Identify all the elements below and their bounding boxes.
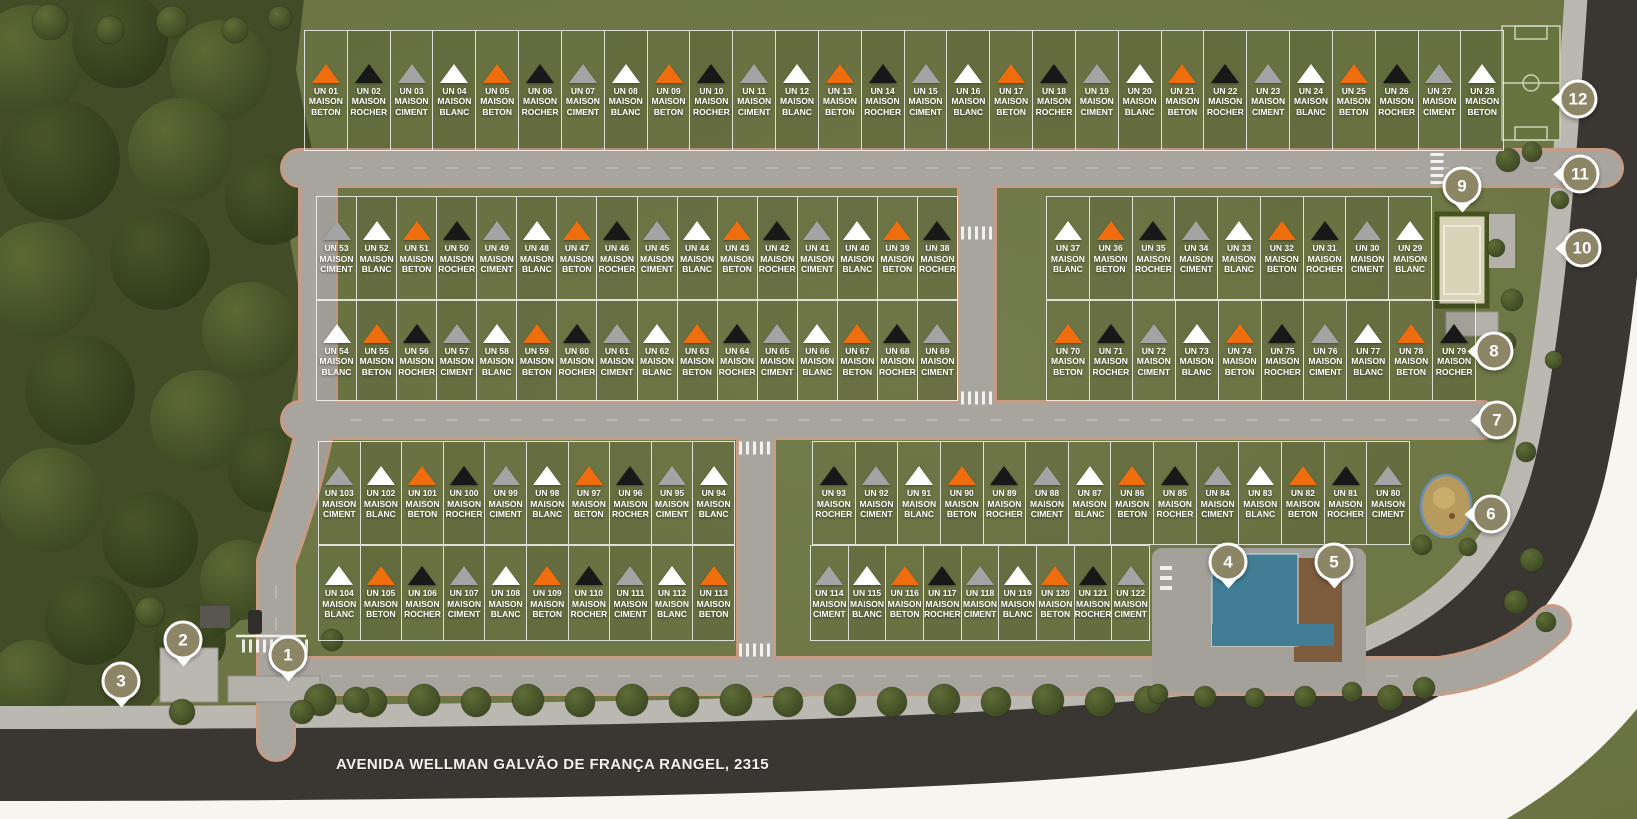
lot-label: UN 38MAISONROCHER: [919, 243, 956, 275]
lot-UN-24[interactable]: UN 24MAISONBLANC: [1289, 31, 1332, 150]
lot-label: UN 107MAISONCIMENT: [447, 588, 481, 620]
lot-UN-116[interactable]: UN 116MAISONBETON: [885, 546, 923, 640]
lot-UN-41[interactable]: UN 41MAISONCIMENT: [797, 197, 837, 299]
lot-marker-triangle: [966, 566, 994, 585]
lot-UN-96[interactable]: UN 96MAISONROCHER: [609, 442, 651, 544]
block-r5r: UN 114MAISONCIMENTUN 115MAISONBLANCUN 11…: [810, 545, 1150, 641]
lot-UN-95[interactable]: UN 95MAISONCIMENT: [651, 442, 693, 544]
lot-label: UN 22MAISONROCHER: [1207, 86, 1244, 118]
lot-UN-45[interactable]: UN 45MAISONCIMENT: [637, 197, 677, 299]
lot-UN-114[interactable]: UN 114MAISONCIMENT: [811, 546, 848, 640]
lot-marker-triangle: [403, 221, 431, 240]
lot-UN-100[interactable]: UN 100MAISONROCHER: [443, 442, 485, 544]
lot-UN-93[interactable]: UN 93MAISONROCHER: [813, 442, 855, 544]
lot-type: ROCHER: [693, 107, 730, 118]
lot-maison-word: MAISON: [440, 356, 474, 367]
lot-UN-83[interactable]: UN 83MAISONBLANC: [1238, 442, 1281, 544]
lot-UN-66[interactable]: UN 66MAISONBLANC: [797, 301, 837, 400]
lot-marker-triangle: [492, 566, 520, 585]
lot-UN-17[interactable]: UN 17MAISONBETON: [989, 31, 1032, 150]
lot-unit-number: UN 41: [800, 243, 834, 254]
lot-UN-72[interactable]: UN 72MAISONCIMENT: [1132, 301, 1175, 400]
lot-UN-20[interactable]: UN 20MAISONBLANC: [1118, 31, 1161, 150]
lot-type: ROCHER: [1036, 107, 1073, 118]
lot-type: CIMENT: [800, 264, 834, 275]
tree: [824, 684, 856, 716]
lot-type: ROCHER: [719, 367, 756, 378]
lot-marker-triangle: [563, 221, 591, 240]
lot-label: UN 56MAISONROCHER: [398, 346, 435, 378]
lot-UN-108[interactable]: UN 108MAISONBLANC: [484, 546, 526, 640]
lot-UN-03[interactable]: UN 03MAISONCIMENT: [390, 31, 433, 150]
lot-UN-32[interactable]: UN 32MAISONBETON: [1260, 197, 1303, 299]
lot-type: ROCHER: [1436, 367, 1473, 378]
lot-UN-118[interactable]: UN 118MAISONCIMENT: [961, 546, 999, 640]
lot-type: BLANC: [1393, 264, 1427, 275]
lot-maison-word: MAISON: [395, 96, 429, 107]
lot-unit-number: UN 60: [558, 346, 595, 357]
lot-label: UN 68MAISONROCHER: [879, 346, 916, 378]
lot-UN-94[interactable]: UN 94MAISONBLANC: [692, 442, 734, 544]
lot-type: ROCHER: [522, 107, 559, 118]
lot-marker-triangle: [450, 566, 478, 585]
lot-unit-number: UN 118: [963, 588, 997, 599]
map-pin-5[interactable]: 5: [1315, 543, 1354, 582]
lot-marker-triangle: [616, 566, 644, 585]
lot-type: CIMENT: [812, 609, 846, 620]
tree: [268, 6, 292, 30]
lot-UN-44[interactable]: UN 44MAISONBLANC: [677, 197, 717, 299]
lot-UN-31[interactable]: UN 31MAISONROCHER: [1303, 197, 1346, 299]
lot-marker-triangle: [408, 466, 436, 485]
lot-UN-82[interactable]: UN 82MAISONBETON: [1281, 442, 1324, 544]
lot-marker-triangle: [723, 324, 751, 343]
lot-marker-triangle: [325, 566, 353, 585]
lot-UN-110[interactable]: UN 110MAISONROCHER: [568, 546, 610, 640]
lot-UN-69[interactable]: UN 69MAISONCIMENT: [917, 301, 957, 400]
lot-UN-35[interactable]: UN 35MAISONROCHER: [1132, 197, 1175, 299]
lot-UN-109[interactable]: UN 109MAISONBETON: [526, 546, 568, 640]
lot-UN-92[interactable]: UN 92MAISONCIMENT: [855, 442, 898, 544]
lot-UN-22[interactable]: UN 22MAISONROCHER: [1203, 31, 1246, 150]
lot-UN-112[interactable]: UN 112MAISONBLANC: [651, 546, 693, 640]
lot-UN-42[interactable]: UN 42MAISONROCHER: [757, 197, 797, 299]
lot-maison-word: MAISON: [737, 96, 771, 107]
lot-marker-triangle: [1117, 566, 1145, 585]
lot-UN-19[interactable]: UN 19MAISONCIMENT: [1075, 31, 1118, 150]
lot-maison-word: MAISON: [986, 499, 1023, 510]
tree: [1496, 148, 1520, 172]
lot-UN-08[interactable]: UN 08MAISONBLANC: [604, 31, 647, 150]
lot-maison-word: MAISON: [850, 599, 884, 610]
lot-UN-101[interactable]: UN 101MAISONBETON: [401, 442, 443, 544]
lot-UN-68[interactable]: UN 68MAISONROCHER: [877, 301, 917, 400]
lot-maison-word: MAISON: [697, 599, 731, 610]
lot-unit-number: UN 22: [1207, 86, 1244, 97]
lot-UN-67[interactable]: UN 67MAISONBETON: [837, 301, 877, 400]
lot-UN-16[interactable]: UN 16MAISONBLANC: [946, 31, 989, 150]
lot-UN-13[interactable]: UN 13MAISONBETON: [818, 31, 861, 150]
lot-type: ROCHER: [1327, 509, 1364, 520]
lot-UN-28[interactable]: UN 28MAISONBETON: [1460, 31, 1503, 150]
lot-UN-91[interactable]: UN 91MAISONBLANC: [897, 442, 940, 544]
lot-UN-23[interactable]: UN 23MAISONCIMENT: [1246, 31, 1289, 150]
lot-unit-number: UN 39: [880, 243, 914, 254]
lot-UN-07[interactable]: UN 07MAISONCIMENT: [561, 31, 604, 150]
lot-label: UN 35MAISONROCHER: [1135, 243, 1172, 275]
lot-label: UN 14MAISONROCHER: [864, 86, 901, 118]
lot-marker-triangle: [883, 324, 911, 343]
lot-unit-number: UN 83: [1243, 488, 1277, 499]
lot-marker-triangle: [912, 64, 940, 83]
lot-type: BETON: [1394, 367, 1428, 378]
lot-UN-107[interactable]: UN 107MAISONCIMENT: [443, 546, 485, 640]
map-pin-8[interactable]: 8: [1475, 332, 1514, 371]
lot-UN-75[interactable]: UN 75MAISONROCHER: [1261, 301, 1304, 400]
lot-UN-103[interactable]: UN 103MAISONCIMENT: [319, 442, 360, 544]
lot-maison-word: MAISON: [360, 254, 394, 265]
lot-UN-97[interactable]: UN 97MAISONBETON: [568, 442, 610, 544]
lot-unit-number: UN 96: [612, 488, 649, 499]
tree: [565, 687, 595, 717]
lot-marker-triangle: [569, 64, 597, 83]
lot-label: UN 58MAISONBLANC: [480, 346, 514, 378]
lot-unit-number: UN 81: [1327, 488, 1364, 499]
lot-type: BLANC: [1243, 509, 1277, 520]
lot-label: UN 19MAISONCIMENT: [1080, 86, 1114, 118]
lot-UN-46[interactable]: UN 46MAISONROCHER: [596, 197, 636, 299]
lot-marker-triangle: [1041, 566, 1069, 585]
lot-label: UN 120MAISONBETON: [1038, 588, 1072, 620]
lot-UN-09[interactable]: UN 09MAISONBETON: [647, 31, 690, 150]
lot-UN-15[interactable]: UN 15MAISONCIMENT: [904, 31, 947, 150]
lot-UN-64[interactable]: UN 64MAISONROCHER: [717, 301, 757, 400]
lot-UN-73[interactable]: UN 73MAISONBLANC: [1175, 301, 1218, 400]
lot-maison-word: MAISON: [1222, 254, 1256, 265]
lot-unit-number: UN 09: [652, 86, 686, 97]
lot-label: UN 110MAISONROCHER: [570, 588, 607, 620]
lot-unit-number: UN 102: [364, 488, 398, 499]
lot-marker-triangle: [408, 566, 436, 585]
lot-UN-37[interactable]: UN 37MAISONBLANC: [1047, 197, 1089, 299]
lot-maison-word: MAISON: [1207, 96, 1244, 107]
lot-UN-70[interactable]: UN 70MAISONBETON: [1047, 301, 1089, 400]
lot-type: CIMENT: [909, 107, 943, 118]
lot-label: UN 97MAISONBETON: [572, 488, 606, 520]
lot-UN-56[interactable]: UN 56MAISONROCHER: [396, 301, 436, 400]
lot-label: UN 69MAISONCIMENT: [920, 346, 954, 378]
lot-label: UN 39MAISONBETON: [880, 243, 914, 275]
lot-maison-word: MAISON: [1001, 599, 1035, 610]
lot-maison-word: MAISON: [812, 599, 846, 610]
lot-label: UN 99MAISONCIMENT: [489, 488, 523, 520]
lot-unit-number: UN 10: [693, 86, 730, 97]
lot-UN-25[interactable]: UN 25MAISONBETON: [1332, 31, 1375, 150]
map-pin-7[interactable]: 7: [1478, 401, 1517, 440]
lot-UN-14[interactable]: UN 14MAISONROCHER: [861, 31, 904, 150]
lot-label: UN 42MAISONROCHER: [759, 243, 796, 275]
lot-UN-71[interactable]: UN 71MAISONROCHER: [1089, 301, 1132, 400]
lot-label: UN 103MAISONCIMENT: [322, 488, 356, 520]
lot-unit-number: UN 67: [840, 346, 874, 357]
lot-maison-word: MAISON: [963, 599, 997, 610]
tree: [222, 17, 248, 43]
lot-type: ROCHER: [599, 264, 636, 275]
lot-UN-76[interactable]: UN 76MAISONCIMENT: [1303, 301, 1346, 400]
lot-type: BLANC: [680, 264, 714, 275]
lot-UN-121[interactable]: UN 121MAISONROCHER: [1074, 546, 1112, 640]
lot-UN-113[interactable]: UN 113MAISONBETON: [692, 546, 734, 640]
lot-UN-117[interactable]: UN 117MAISONROCHER: [923, 546, 961, 640]
map-pin-10[interactable]: 10: [1563, 229, 1602, 268]
lot-UN-86[interactable]: UN 86MAISONBETON: [1110, 442, 1153, 544]
map-pin-number: 2: [178, 630, 187, 650]
lot-UN-122[interactable]: UN 122MAISONCIMENT: [1111, 546, 1149, 640]
lot-type: BLANC: [780, 107, 814, 118]
map-pin-2[interactable]: 2: [164, 621, 203, 660]
lot-UN-12[interactable]: UN 12MAISONBLANC: [775, 31, 818, 150]
lot-UN-39[interactable]: UN 39MAISONBETON: [877, 197, 917, 299]
lot-marker-triangle: [1311, 221, 1339, 240]
lot-UN-30[interactable]: UN 30MAISONCIMENT: [1345, 197, 1388, 299]
lot-marker-triangle: [990, 466, 1018, 485]
lot-UN-27[interactable]: UN 27MAISONCIMENT: [1418, 31, 1461, 150]
lot-marker-triangle: [603, 221, 631, 240]
lot-UN-34[interactable]: UN 34MAISONCIMENT: [1174, 197, 1217, 299]
lot-UN-98[interactable]: UN 98MAISONBLANC: [526, 442, 568, 544]
lot-UN-62[interactable]: UN 62MAISONBLANC: [637, 301, 677, 400]
lot-maison-word: MAISON: [920, 356, 954, 367]
block-r1: UN 01MAISONBETONUN 02MAISONROCHERUN 03MA…: [304, 30, 1504, 151]
lot-UN-29[interactable]: UN 29MAISONBLANC: [1388, 197, 1431, 299]
lot-UN-06[interactable]: UN 06MAISONROCHER: [518, 31, 561, 150]
tree: [928, 684, 960, 716]
lot-marker-triangle: [643, 324, 671, 343]
lot-UN-90[interactable]: UN 90MAISONBETON: [940, 442, 983, 544]
lot-unit-number: UN 58: [480, 346, 514, 357]
lot-unit-number: UN 48: [520, 243, 554, 254]
lot-UN-18[interactable]: UN 18MAISONROCHER: [1032, 31, 1075, 150]
lot-label: UN 41MAISONCIMENT: [800, 243, 834, 275]
lot-maison-word: MAISON: [320, 356, 354, 367]
map-pin-6[interactable]: 6: [1472, 495, 1511, 534]
lot-type: CIMENT: [320, 264, 354, 275]
lot-maison-word: MAISON: [570, 599, 607, 610]
lot-UN-47[interactable]: UN 47MAISONBETON: [556, 197, 596, 299]
lot-UN-115[interactable]: UN 115MAISONBLANC: [848, 546, 886, 640]
lot-unit-number: UN 11: [737, 86, 771, 97]
lot-UN-58[interactable]: UN 58MAISONBLANC: [476, 301, 516, 400]
lot-UN-88[interactable]: UN 88MAISONCIMENT: [1025, 442, 1068, 544]
lot-UN-99[interactable]: UN 99MAISONCIMENT: [484, 442, 526, 544]
lot-unit-number: UN 19: [1080, 86, 1114, 97]
lot-unit-number: UN 64: [719, 346, 756, 357]
lot-label: UN 109MAISONBETON: [530, 588, 564, 620]
lot-maison-word: MAISON: [1075, 599, 1112, 610]
lot-maison-word: MAISON: [1036, 96, 1073, 107]
lot-unit-number: UN 52: [360, 243, 394, 254]
lot-type: ROCHER: [815, 509, 852, 520]
lot-marker-triangle: [367, 466, 395, 485]
lot-UN-40[interactable]: UN 40MAISONBLANC: [837, 197, 877, 299]
lot-UN-55[interactable]: UN 55MAISONBETON: [356, 301, 396, 400]
lot-label: UN 88MAISONCIMENT: [1030, 488, 1064, 520]
lot-UN-120[interactable]: UN 120MAISONBETON: [1036, 546, 1074, 640]
lot-maison-word: MAISON: [1165, 96, 1199, 107]
lot-UN-57[interactable]: UN 57MAISONCIMENT: [436, 301, 476, 400]
map-pin-12[interactable]: 12: [1559, 80, 1598, 119]
lot-unit-number: UN 84: [1201, 488, 1235, 499]
lot-UN-105[interactable]: UN 105MAISONBETON: [360, 546, 402, 640]
lot-maison-word: MAISON: [909, 96, 943, 107]
lot-UN-49[interactable]: UN 49MAISONCIMENT: [476, 197, 516, 299]
lot-UN-33[interactable]: UN 33MAISONBLANC: [1217, 197, 1260, 299]
lot-UN-04[interactable]: UN 04MAISONBLANC: [432, 31, 475, 150]
lot-type: BLANC: [840, 264, 874, 275]
lot-UN-119[interactable]: UN 119MAISONBLANC: [998, 546, 1036, 640]
lot-marker-triangle: [1040, 64, 1068, 83]
lot-unit-number: UN 88: [1030, 488, 1064, 499]
lot-maison-word: MAISON: [364, 499, 398, 510]
lot-unit-number: UN 99: [489, 488, 523, 499]
lot-UN-111[interactable]: UN 111MAISONCIMENT: [609, 546, 651, 640]
lot-label: UN 12MAISONBLANC: [780, 86, 814, 118]
lot-unit-number: UN 86: [1115, 488, 1149, 499]
lot-UN-63[interactable]: UN 63MAISONBETON: [677, 301, 717, 400]
tree: [877, 687, 907, 717]
map-pin-11[interactable]: 11: [1561, 155, 1600, 194]
lot-UN-81[interactable]: UN 81MAISONROCHER: [1324, 442, 1367, 544]
lot-marker-triangle: [616, 466, 644, 485]
lot-marker-triangle: [1332, 466, 1360, 485]
lot-maison-word: MAISON: [322, 499, 356, 510]
lot-type: BETON: [1094, 264, 1128, 275]
lot-type: ROCHER: [879, 367, 916, 378]
lot-UN-87[interactable]: UN 87MAISONBLANC: [1068, 442, 1111, 544]
lot-type: CIMENT: [737, 107, 771, 118]
lot-unit-number: UN 55: [360, 346, 394, 357]
lot-type: BLANC: [1180, 367, 1214, 378]
map-pin-1[interactable]: 1: [269, 636, 308, 675]
lot-maison-word: MAISON: [404, 599, 441, 610]
tree: [408, 684, 440, 716]
lot-marker-triangle: [803, 221, 831, 240]
lot-label: UN 29MAISONBLANC: [1393, 243, 1427, 275]
lot-maison-word: MAISON: [945, 499, 979, 510]
lot-unit-number: UN 108: [489, 588, 523, 599]
lot-maison-word: MAISON: [652, 96, 686, 107]
map-pin-number: 11: [1571, 164, 1589, 184]
lot-UN-36[interactable]: UN 36MAISONBETON: [1089, 197, 1132, 299]
lot-UN-102[interactable]: UN 102MAISONBLANC: [360, 442, 402, 544]
lot-UN-78[interactable]: UN 78MAISONBETON: [1389, 301, 1432, 400]
lot-marker-triangle: [697, 64, 725, 83]
lot-type: BETON: [1465, 107, 1499, 118]
lot-UN-02[interactable]: UN 02MAISONROCHER: [347, 31, 390, 150]
lot-type: BETON: [994, 107, 1028, 118]
lot-UN-85[interactable]: UN 85MAISONROCHER: [1153, 442, 1196, 544]
lot-UN-74[interactable]: UN 74MAISONBETON: [1218, 301, 1261, 400]
map-pin-9[interactable]: 9: [1443, 167, 1482, 206]
lot-UN-61[interactable]: UN 61MAISONCIMENT: [596, 301, 636, 400]
lot-unit-number: UN 40: [840, 243, 874, 254]
lot-UN-26[interactable]: UN 26MAISONROCHER: [1375, 31, 1418, 150]
lot-UN-84[interactable]: UN 84MAISONCIMENT: [1196, 442, 1239, 544]
lot-marker-triangle: [1440, 324, 1468, 343]
block-r3r: UN 70MAISONBETONUN 71MAISONROCHERUN 72MA…: [1046, 300, 1476, 401]
lot-UN-48[interactable]: UN 48MAISONBLANC: [516, 197, 556, 299]
lot-UN-50[interactable]: UN 50MAISONROCHER: [436, 197, 476, 299]
lot-label: UN 21MAISONBETON: [1165, 86, 1199, 118]
lot-type: ROCHER: [350, 107, 387, 118]
lot-UN-52[interactable]: UN 52MAISONBLANC: [356, 197, 396, 299]
lot-maison-word: MAISON: [566, 96, 600, 107]
lot-UN-106[interactable]: UN 106MAISONROCHER: [401, 546, 443, 640]
lot-type: BLANC: [609, 107, 643, 118]
tree: [1377, 685, 1403, 711]
lot-UN-51[interactable]: UN 51MAISONBETON: [396, 197, 436, 299]
lot-unit-number: UN 26: [1378, 86, 1415, 97]
lot-label: UN 27MAISONCIMENT: [1422, 86, 1456, 118]
tree: [1520, 548, 1544, 572]
lot-UN-43[interactable]: UN 43MAISONBETON: [717, 197, 757, 299]
lot-marker-triangle: [1054, 221, 1082, 240]
lot-UN-53[interactable]: UN 53MAISONCIMENT: [317, 197, 356, 299]
lot-unit-number: UN 76: [1308, 346, 1342, 357]
lot-maison-word: MAISON: [1351, 356, 1385, 367]
lot-label: UN 08MAISONBLANC: [609, 86, 643, 118]
lot-UN-80[interactable]: UN 80MAISONCIMENT: [1366, 442, 1409, 544]
lot-unit-number: UN 13: [823, 86, 857, 97]
lot-UN-65[interactable]: UN 65MAISONCIMENT: [757, 301, 797, 400]
lot-UN-11[interactable]: UN 11MAISONCIMENT: [732, 31, 775, 150]
lot-marker-triangle: [763, 221, 791, 240]
map-pin-4[interactable]: 4: [1209, 543, 1248, 582]
lot-unit-number: UN 29: [1393, 243, 1427, 254]
lot-UN-60[interactable]: UN 60MAISONROCHER: [556, 301, 596, 400]
lot-maison-word: MAISON: [1135, 254, 1172, 265]
lot-unit-number: UN 34: [1179, 243, 1213, 254]
lot-unit-number: UN 37: [1051, 243, 1085, 254]
lot-unit-number: UN 82: [1286, 488, 1320, 499]
lot-label: UN 20MAISONBLANC: [1123, 86, 1157, 118]
lot-UN-104[interactable]: UN 104MAISONBLANC: [319, 546, 360, 640]
lot-label: UN 117MAISONROCHER: [924, 588, 961, 620]
lot-label: UN 80MAISONCIMENT: [1371, 488, 1405, 520]
lot-UN-89[interactable]: UN 89MAISONROCHER: [983, 442, 1026, 544]
lot-unit-number: UN 73: [1180, 346, 1214, 357]
lot-UN-21[interactable]: UN 21MAISONBETON: [1161, 31, 1204, 150]
tree: [1413, 677, 1435, 699]
lot-marker-triangle: [1353, 221, 1381, 240]
lot-type: ROCHER: [919, 264, 956, 275]
lot-marker-triangle: [1246, 466, 1274, 485]
lot-marker-triangle: [1054, 324, 1082, 343]
lot-UN-10[interactable]: UN 10MAISONROCHER: [689, 31, 732, 150]
lot-UN-05[interactable]: UN 05MAISONBETON: [475, 31, 518, 150]
lot-UN-01[interactable]: UN 01MAISONBETON: [305, 31, 347, 150]
lot-UN-54[interactable]: UN 54MAISONBLANC: [317, 301, 356, 400]
map-pin-3[interactable]: 3: [102, 662, 141, 701]
lot-label: UN 55MAISONBETON: [360, 346, 394, 378]
lot-type: ROCHER: [446, 509, 483, 520]
lot-maison-word: MAISON: [1051, 356, 1085, 367]
lot-marker-triangle: [1397, 324, 1425, 343]
lot-UN-59[interactable]: UN 59MAISONBETON: [516, 301, 556, 400]
lot-UN-77[interactable]: UN 77MAISONBLANC: [1346, 301, 1389, 400]
lot-UN-38[interactable]: UN 38MAISONROCHER: [917, 197, 957, 299]
lot-marker-triangle: [643, 221, 671, 240]
